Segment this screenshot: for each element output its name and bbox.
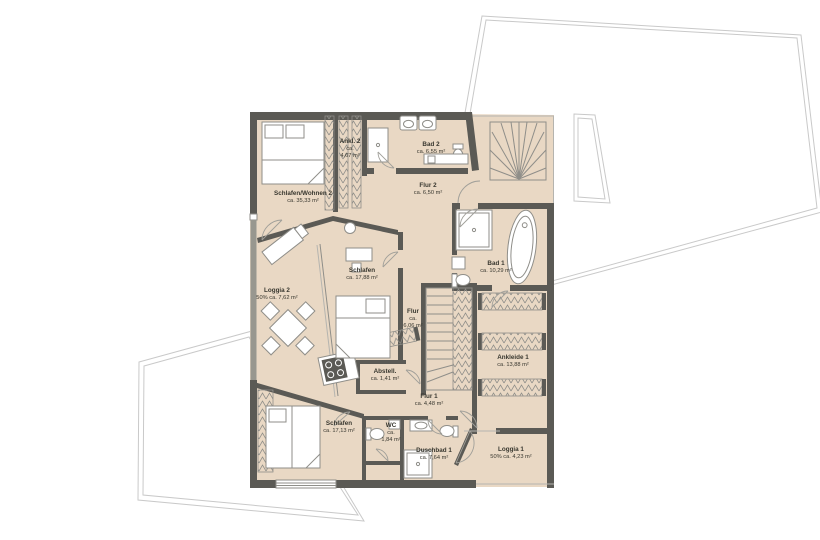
floorplan-canvas: Schlafen/Wohnen 2ca. 35,33 m²Ankl. 2ca.4… (0, 0, 820, 540)
toilet-tank (453, 144, 463, 149)
bed-schlafen-unten (266, 406, 320, 468)
toilet (440, 426, 454, 437)
sink (452, 257, 465, 269)
roof-sliver-outline (574, 114, 610, 203)
window-left (250, 214, 257, 220)
bed-schlafen-mitte (336, 296, 390, 358)
shower (456, 210, 492, 250)
plant (345, 223, 356, 234)
bed-schlafen-wohnen-2 (262, 122, 324, 184)
window-bottom (276, 480, 336, 488)
toilet (456, 275, 470, 286)
floorplan-svg: Schlafen/Wohnen 2ca. 35,33 m²Ankl. 2ca.4… (0, 0, 820, 540)
ankleide1-wardrobes (478, 293, 546, 396)
